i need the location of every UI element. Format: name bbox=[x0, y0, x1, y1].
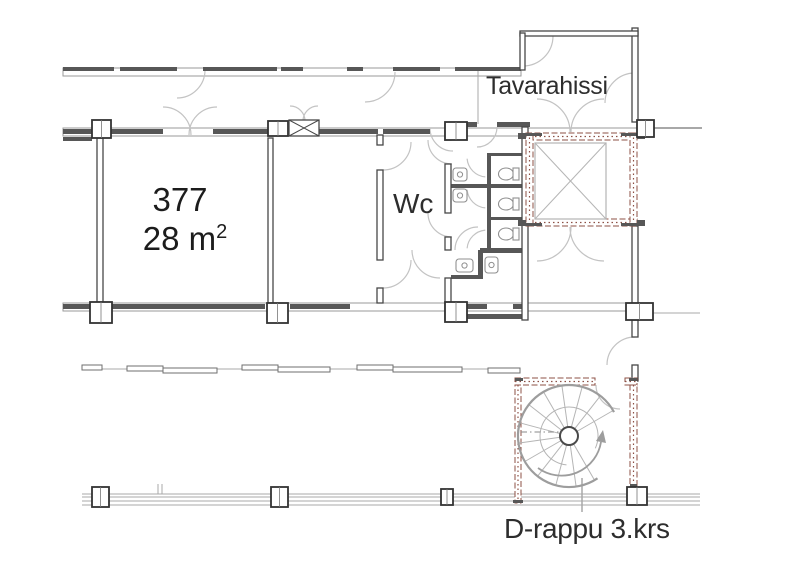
stair-center-post bbox=[560, 427, 578, 445]
wall-segment bbox=[347, 67, 363, 71]
stair-tread bbox=[525, 441, 561, 462]
partition-segment bbox=[393, 367, 462, 372]
wall-segment bbox=[487, 153, 522, 156]
wall-segment bbox=[110, 129, 163, 134]
toilet-bowl bbox=[499, 168, 514, 180]
wall-segment bbox=[455, 67, 521, 71]
door-swing-arc bbox=[383, 142, 411, 170]
door-swing-arc bbox=[605, 73, 635, 103]
door-swing-arc bbox=[428, 140, 452, 164]
door-swing-arc bbox=[455, 227, 478, 250]
partition-segment bbox=[242, 365, 278, 370]
wall-segment bbox=[393, 67, 440, 71]
fire-wall-tab bbox=[621, 223, 637, 226]
floor-plan-canvas bbox=[0, 0, 800, 574]
wall bbox=[377, 288, 383, 303]
wall-segment bbox=[63, 304, 90, 309]
door-swing-arc bbox=[467, 230, 485, 248]
fire-wall-tab bbox=[629, 378, 637, 381]
label-room-area: 28 m2 bbox=[118, 222, 252, 255]
wall-segment bbox=[120, 67, 177, 71]
stair-tread bbox=[570, 445, 576, 487]
wall bbox=[377, 170, 383, 260]
label-stairwell: D-rappu 3.krs bbox=[504, 515, 670, 543]
wall-segment bbox=[497, 122, 530, 127]
label-tavarahissi: Tavarahissi bbox=[486, 74, 608, 99]
fire-wall-tab bbox=[515, 378, 523, 381]
partition-segment bbox=[488, 368, 520, 373]
wash-basin bbox=[453, 189, 467, 202]
wall-segment bbox=[465, 304, 487, 309]
wall-segment bbox=[112, 304, 265, 309]
door-swing-arc bbox=[537, 227, 571, 261]
stair-tread bbox=[562, 385, 568, 427]
wall-segment bbox=[487, 217, 522, 220]
door-swing-arc bbox=[607, 337, 635, 365]
partition-segment bbox=[127, 366, 163, 371]
wall-segment bbox=[281, 67, 303, 71]
wall bbox=[97, 138, 103, 302]
door-swing-arc bbox=[467, 190, 485, 208]
door-swing-arc bbox=[383, 260, 411, 288]
wall bbox=[632, 226, 638, 304]
wall bbox=[377, 135, 383, 145]
wall-segment bbox=[203, 67, 277, 71]
door-swing-arc bbox=[412, 250, 440, 278]
wall-segment bbox=[63, 137, 92, 141]
label-area-sup: 2 bbox=[216, 221, 227, 243]
fire-wall-tab bbox=[518, 220, 526, 226]
stair-direction-arrow bbox=[538, 442, 601, 476]
wall bbox=[520, 31, 638, 36]
partition-segment bbox=[163, 368, 217, 373]
floor-plan: Tavarahissi 377 28 m2 Wc D-rappu 3.krs bbox=[0, 0, 800, 574]
wall-segment bbox=[451, 184, 522, 188]
door-swing-arc bbox=[571, 99, 604, 132]
stair-tread bbox=[544, 392, 565, 428]
door-swing-arc bbox=[537, 99, 570, 132]
label-wc: Wc bbox=[393, 190, 433, 218]
partition-segment bbox=[82, 365, 102, 370]
partition-segment bbox=[278, 367, 330, 372]
toilet-tank bbox=[513, 228, 519, 240]
stair-tread bbox=[577, 411, 613, 432]
toilet-tank bbox=[513, 168, 519, 180]
stair-tread bbox=[518, 437, 560, 443]
wall-segment bbox=[480, 248, 527, 253]
wall-segment bbox=[318, 129, 378, 134]
partition-segment bbox=[357, 365, 393, 370]
toilet-bowl bbox=[499, 228, 514, 240]
fire-wall-tab bbox=[513, 500, 523, 503]
wall bbox=[632, 28, 638, 122]
door-swing-arc bbox=[523, 36, 553, 66]
wash-basin bbox=[485, 257, 498, 273]
toilet-tank bbox=[513, 198, 519, 210]
wall-segment bbox=[63, 129, 92, 134]
wall bbox=[520, 33, 525, 70]
fire-wall-tab bbox=[621, 133, 637, 136]
wall bbox=[268, 138, 273, 303]
toilet-bowl bbox=[499, 198, 514, 210]
label-room-number: 377 bbox=[118, 183, 242, 216]
fire-wall-tab bbox=[518, 133, 526, 139]
fire-wall-tab bbox=[526, 223, 542, 226]
label-area-value: 28 m bbox=[143, 220, 216, 257]
wall-segment bbox=[290, 304, 350, 309]
wall-segment bbox=[478, 250, 483, 277]
wall bbox=[445, 237, 451, 250]
wash-basin bbox=[456, 259, 473, 272]
wash-basin bbox=[453, 168, 467, 181]
wall-segment bbox=[213, 129, 268, 134]
door-swing-arc bbox=[467, 159, 485, 177]
wall bbox=[445, 164, 451, 213]
door-swing-arc bbox=[570, 227, 604, 261]
wall-segment bbox=[487, 153, 491, 248]
wall-segment bbox=[63, 67, 114, 71]
wall bbox=[632, 320, 638, 337]
fire-wall-tab bbox=[637, 220, 645, 226]
fire-wall-tab bbox=[526, 133, 542, 136]
wall-segment bbox=[383, 129, 430, 134]
